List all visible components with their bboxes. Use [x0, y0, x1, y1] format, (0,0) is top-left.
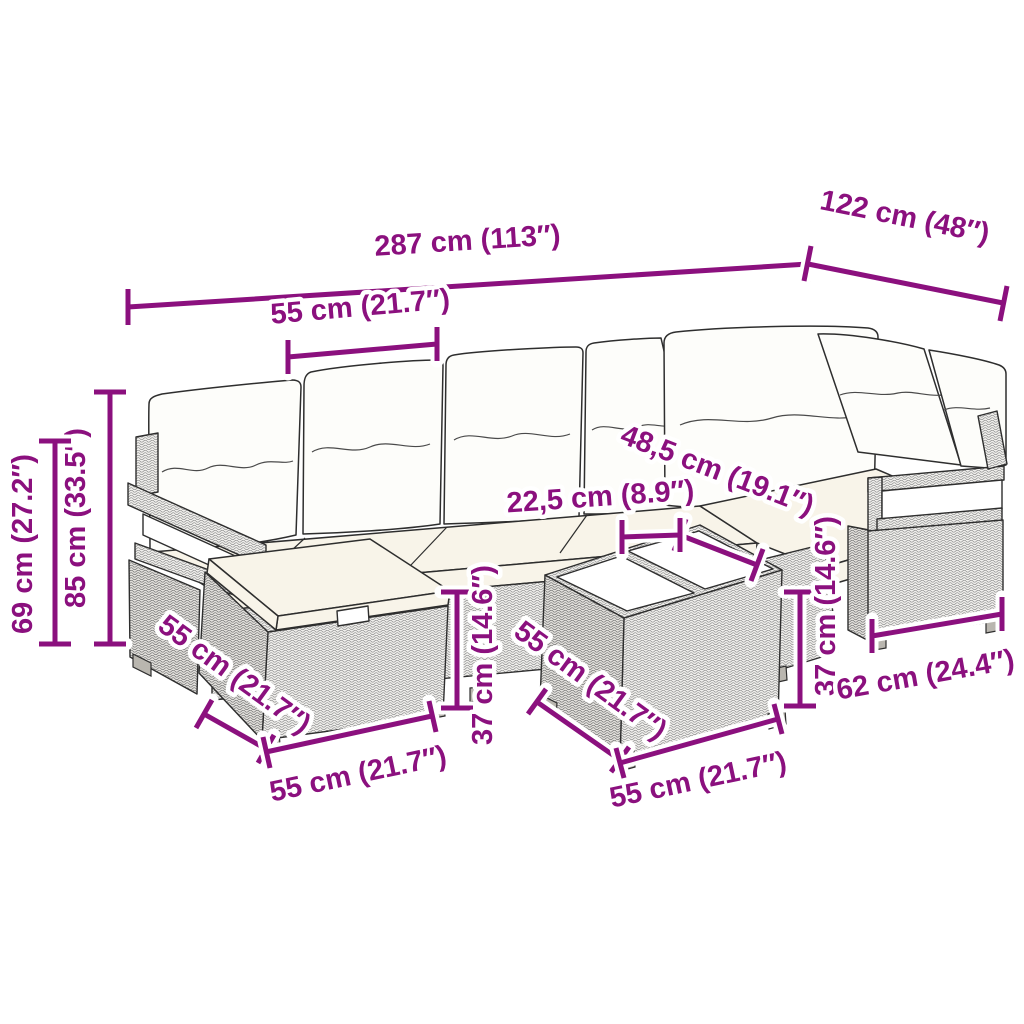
dim-overall-depth: 122 cm (48″) [804, 184, 1007, 321]
dimension-line [94, 392, 126, 644]
dim-back-height: 69 cm (27.2″) [7, 441, 71, 644]
left-arm-back-post [136, 433, 158, 496]
dim-label-overall-depth: 122 cm (48″) [817, 184, 992, 250]
dim-label-stool-height: 37 cm (14.6″) [810, 516, 842, 696]
dim-label-back-height: 69 cm (27.2″) [7, 454, 39, 634]
dim-label-overall-width: 287 cm (113″) [373, 219, 561, 263]
dim-overall-width: 287 cm (113″) [128, 219, 808, 325]
dimension-diagram: 287 cm (113″) 122 cm (48″) 55 cm (21.7″)… [0, 0, 1024, 1024]
dimension-line [804, 246, 1007, 321]
dim-label-table-height: 37 cm (14.6″) [467, 565, 499, 745]
dim-label-armrest-section-width: 62 cm (24.4″) [834, 644, 1017, 707]
dim-label-total-height: 85 cm (33.5″) [60, 428, 92, 608]
dim-total-height: 85 cm (33.5″) [60, 392, 126, 644]
diagram-canvas: 287 cm (113″) 122 cm (48″) 55 cm (21.7″)… [0, 0, 1024, 1024]
back-pillow-2 [303, 360, 443, 534]
dimension-line [128, 246, 808, 325]
